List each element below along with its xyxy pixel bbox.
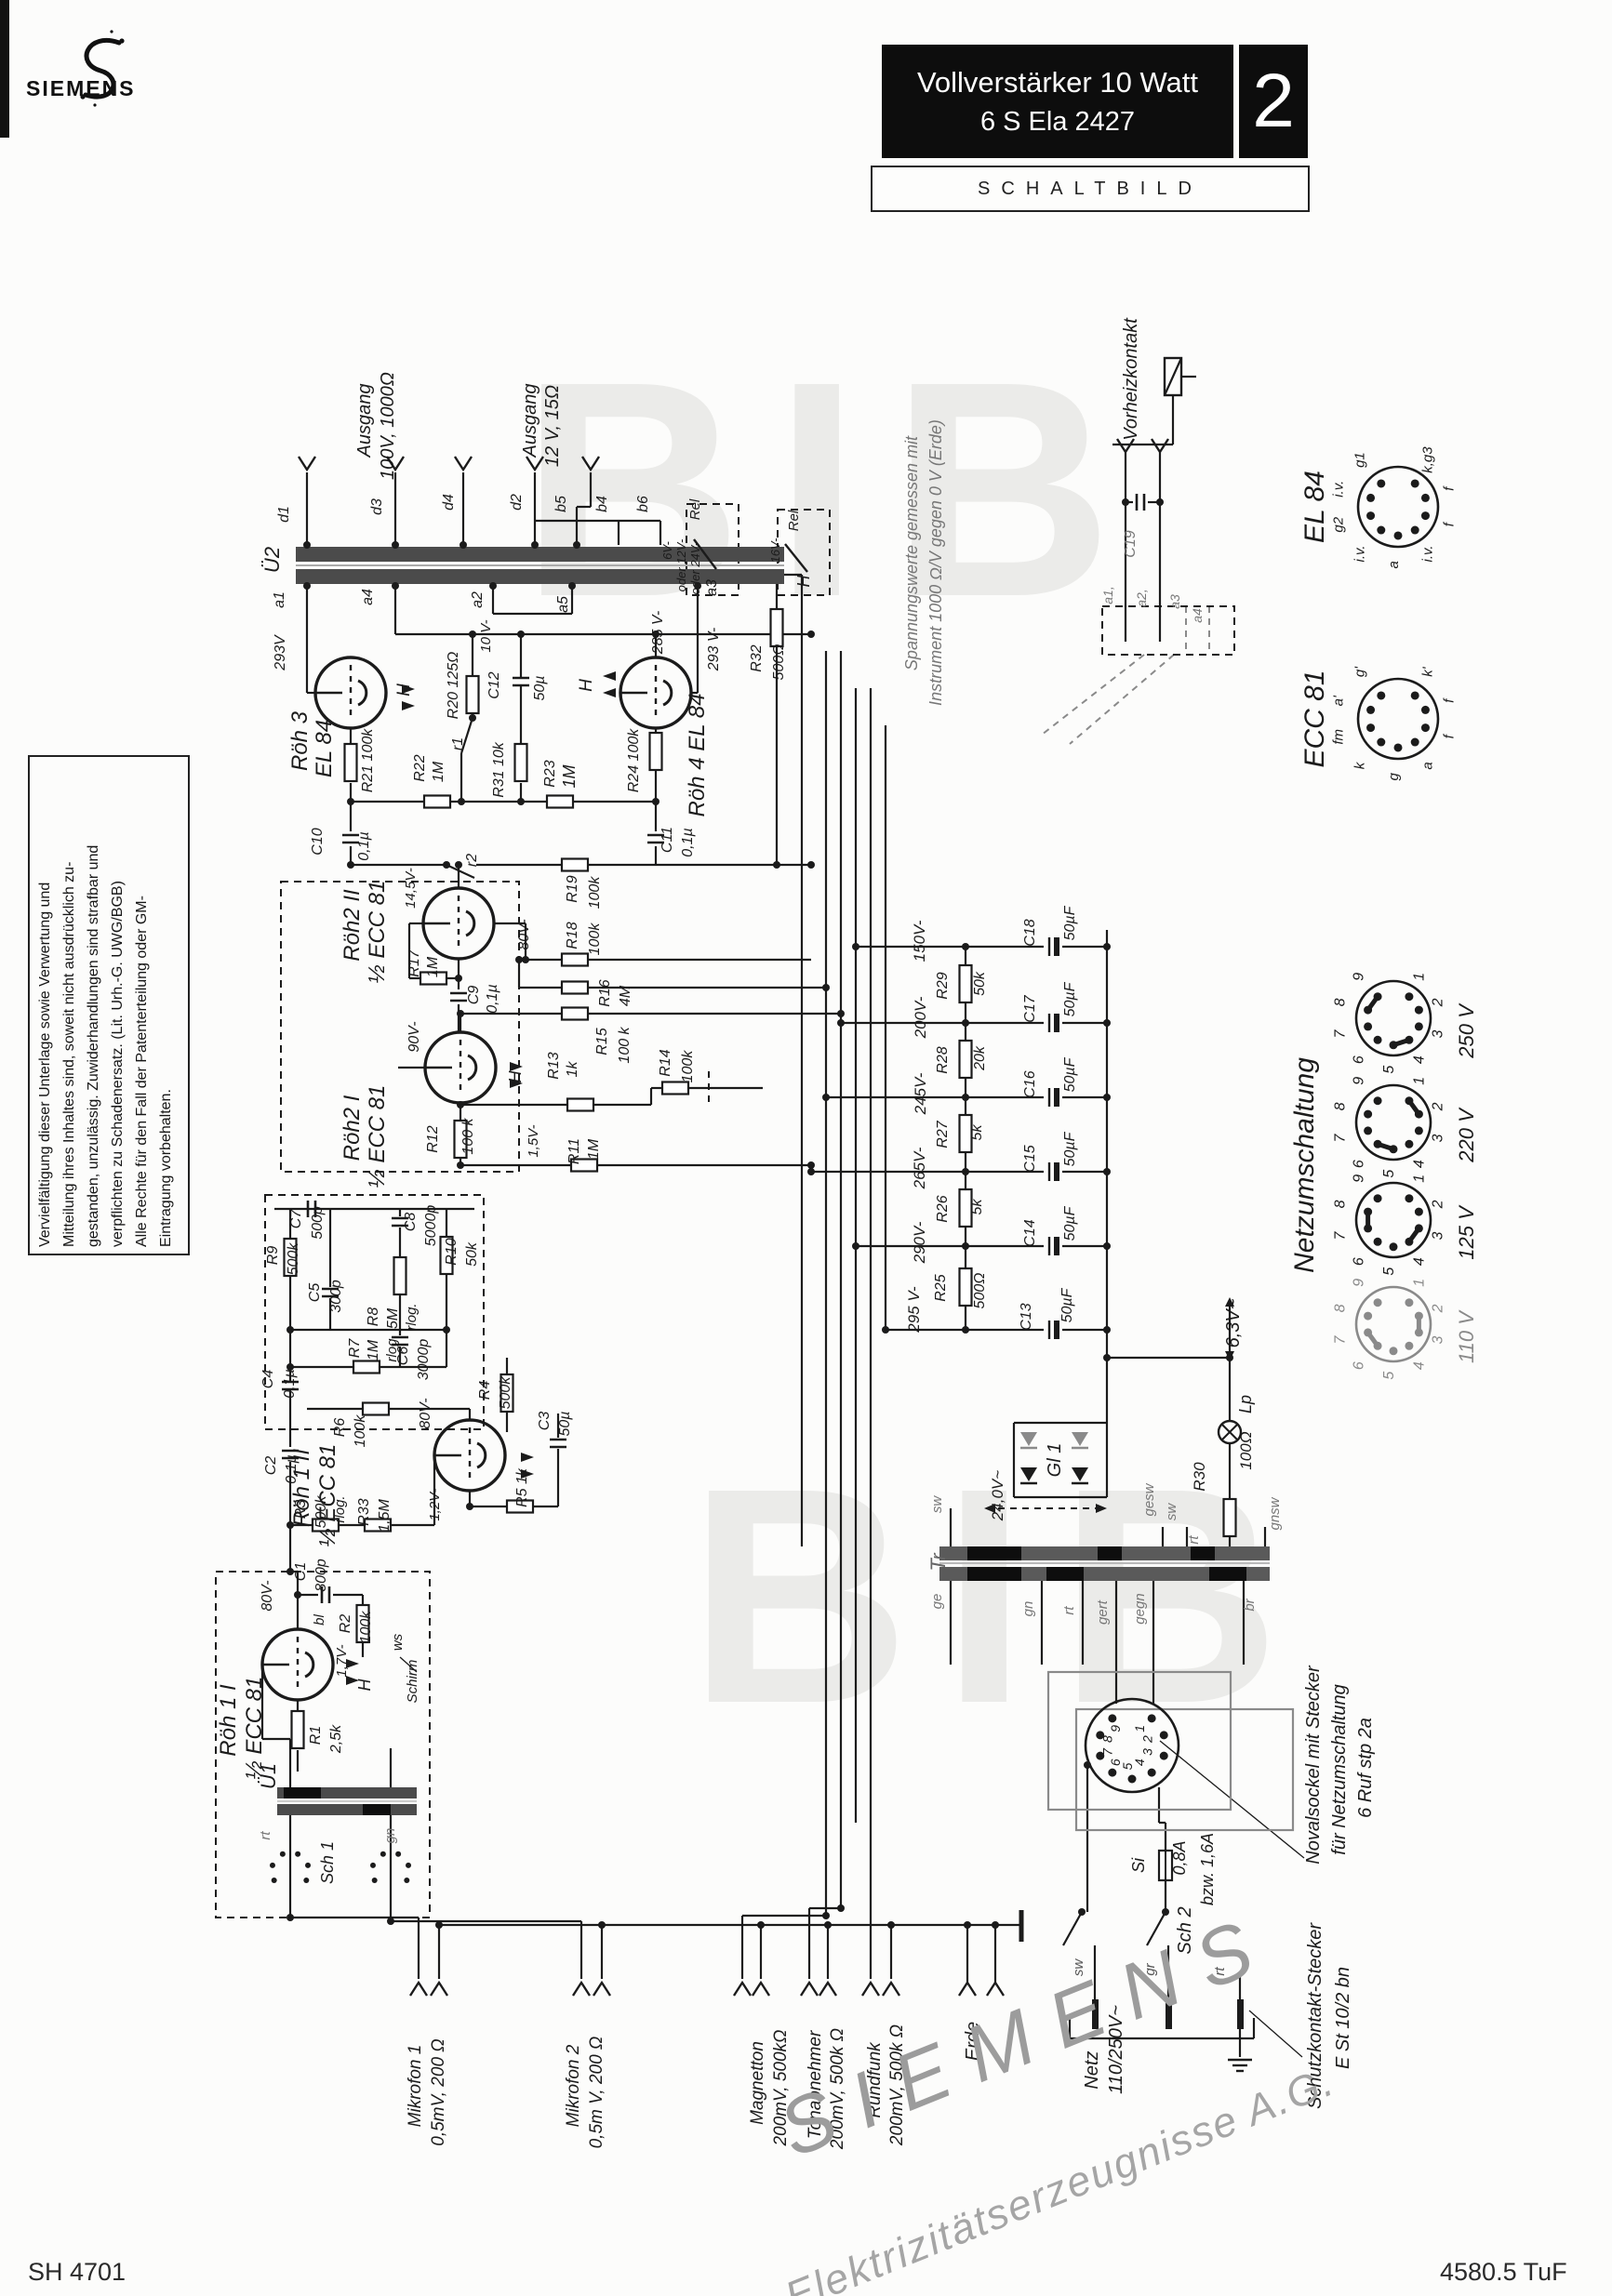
- schematic-label: 265V-: [911, 1147, 928, 1189]
- schematic-label: 80V-: [516, 919, 532, 949]
- schematic-label: 500Ω: [972, 1273, 988, 1309]
- schematic-label: Ü1: [257, 1763, 280, 1789]
- schematic-label: Röh 3: [287, 710, 313, 771]
- resistor-symbol: [467, 676, 479, 713]
- schematic-label: R7: [347, 1338, 363, 1359]
- socket-pin-label: fm: [1331, 729, 1347, 745]
- terminal-fork: [410, 1983, 427, 1996]
- schematic-label: d3: [369, 498, 385, 515]
- resistor-symbol: [662, 1082, 688, 1095]
- socket-pin-label: a: [1386, 561, 1402, 568]
- terminal-fork: [753, 1983, 769, 1996]
- schematic-label: 50µ: [557, 1411, 573, 1436]
- schematic-label: 2,5k: [328, 1724, 344, 1754]
- schematic-label: 16V-: [768, 538, 782, 564]
- schematic-label: Lp: [1236, 1395, 1255, 1413]
- mains-voltage-socket: 123456789250 V: [1333, 973, 1478, 1074]
- socket-pin-label: 1: [1411, 1077, 1427, 1085]
- schematic-label: 500p: [310, 1206, 326, 1240]
- terminal-fork: [819, 1983, 836, 1996]
- schematic-label: 6,3V~: [1223, 1298, 1244, 1347]
- schematic-label: 80V-: [418, 1398, 433, 1428]
- schematic-label: Si: [1129, 1857, 1148, 1873]
- schematic-label: 100V, 1000Ω: [378, 372, 398, 480]
- schematic-label: gesw: [1141, 1482, 1157, 1516]
- schematic-label: H: [794, 575, 813, 588]
- resistor-symbol: [650, 733, 662, 770]
- schematic-label: R19: [565, 875, 580, 902]
- schematic-label: 100k: [353, 1414, 368, 1448]
- socket-pin-label: 6: [1352, 1361, 1367, 1370]
- schematic-label: R29: [935, 972, 951, 999]
- schematic-label: ½ ECC 81: [365, 881, 390, 984]
- terminal-fork: [862, 1983, 879, 1996]
- schematic-label: 20k: [972, 1045, 988, 1071]
- resistor-symbol: [567, 1099, 593, 1111]
- schematic-label: C16: [1022, 1070, 1038, 1097]
- socket-pin-label: 3: [1430, 1232, 1445, 1241]
- schematic-label: 1M: [560, 764, 579, 788]
- schematic-label: R6: [332, 1418, 348, 1438]
- resistor-symbol: [771, 609, 783, 646]
- socket-voltage-label: 110 V: [1455, 1309, 1478, 1363]
- schematic-label: R10: [444, 1238, 460, 1265]
- schematic-label: R20 125Ω: [446, 652, 461, 720]
- schematic-label: Magnetton: [748, 2041, 767, 2125]
- socket-pin-label: f: [1441, 697, 1457, 703]
- schematic-label: E St 10/2 bn: [1333, 1967, 1353, 2069]
- schematic-label: R16: [597, 979, 613, 1006]
- schematic-label: rt: [1061, 1606, 1077, 1615]
- schematic-label: 1M: [586, 1138, 602, 1160]
- schematic-label: R17: [406, 949, 422, 976]
- schematic-label: 1M: [366, 1339, 381, 1360]
- schematic-label: 500k: [313, 1495, 329, 1529]
- schematic-label: gegn: [1132, 1593, 1148, 1624]
- schematic-label: Novalsockel mit Stecker: [1303, 1665, 1324, 1865]
- socket-pin-label: 9: [1108, 1725, 1123, 1732]
- schematic-label: gn: [1020, 1601, 1036, 1617]
- terminal-fork: [987, 1983, 1004, 1996]
- mains-plug-pin: [1237, 1999, 1244, 2029]
- socket-pin-label: 9: [1352, 973, 1367, 981]
- resistor-symbol: [562, 859, 588, 871]
- socket-pin-label: 4: [1411, 1361, 1427, 1370]
- socket-pin-label: 8: [1333, 1102, 1349, 1110]
- heater-arrow-icon: [603, 688, 616, 697]
- schematic-label: 1k: [565, 1061, 580, 1078]
- terminal-fork: [455, 457, 472, 470]
- socket-pin-label: k,g3: [1420, 446, 1436, 473]
- terminal-fork: [883, 1983, 899, 1996]
- socket-pin-label: f: [1441, 733, 1457, 738]
- schematic-label: 100 k: [460, 1117, 476, 1154]
- socket-voltage-label: 125 V: [1455, 1204, 1478, 1260]
- socket-pin-label: 2: [1430, 998, 1445, 1007]
- socket-pin-label: g2: [1331, 516, 1347, 532]
- schematic-label: 50µF: [1062, 905, 1078, 940]
- schematic-label: C1: [293, 1562, 309, 1581]
- schematic-label: H: [506, 1070, 525, 1083]
- schematic-label: 0,8A: [1170, 1840, 1189, 1875]
- schematic-label: 500k: [498, 1376, 513, 1410]
- schematic-label: Schirm: [405, 1660, 420, 1704]
- schematic-label: R4: [477, 1381, 493, 1400]
- resistor-symbol: [960, 1268, 972, 1306]
- socket-pin-label: i.v.: [1352, 545, 1367, 562]
- schematic-label: gn: [382, 1828, 398, 1844]
- resistor-symbol: [1224, 1499, 1236, 1536]
- socket-pin-label: 1: [1411, 1279, 1427, 1287]
- mains-voltage-socket: 123456789125 V: [1333, 1175, 1478, 1276]
- schematic-label: R12: [425, 1125, 441, 1152]
- mains-voltage-socket: 123456789220 V: [1333, 1077, 1478, 1178]
- schematic-label: Mikrofon 1: [406, 2045, 425, 2128]
- schematic-label: Röh2 I: [340, 1095, 365, 1161]
- schematic-label: 293V: [273, 634, 288, 671]
- schematic-label: rlog.: [384, 1334, 400, 1361]
- socket-pin-label: 2: [1430, 1200, 1445, 1209]
- schematic-label: 100k: [358, 1611, 374, 1644]
- resistor-symbol: [562, 982, 588, 994]
- schematic-label: 0,1µ: [485, 984, 500, 1013]
- schematic-label: ws: [390, 1633, 406, 1651]
- schematic-label: R22: [412, 754, 428, 781]
- socket-pin-label: f: [1441, 485, 1457, 491]
- socket-pin-label: 8: [1333, 1200, 1349, 1208]
- schematic-label: a4: [360, 589, 376, 605]
- schematic-label: R11: [566, 1138, 582, 1164]
- schematic-label: 293 V-: [706, 628, 722, 672]
- schematic-label: C7: [288, 1209, 304, 1229]
- socket-pin-label: 7: [1100, 1747, 1115, 1756]
- schematic-label: R24 100k: [626, 728, 642, 792]
- schematic-label: 285 V-: [650, 611, 666, 656]
- schematic-label: 0,5m V, 200 Ω: [587, 2037, 606, 2149]
- schematic-label: b5: [553, 496, 569, 512]
- socket-pin-label: 1: [1411, 1175, 1427, 1183]
- schematic-label: oder 12V-: [674, 538, 688, 591]
- schematic-label: 50µF: [1062, 1205, 1078, 1241]
- terminal-fork: [734, 1983, 751, 1996]
- socket-pin-label: 5: [1381, 1267, 1397, 1276]
- schematic-label: 300p: [328, 1280, 344, 1313]
- schematic-label: R30: [1191, 1462, 1208, 1492]
- schematic-label: a5: [555, 596, 571, 613]
- schematic-label: 800p: [313, 1559, 329, 1592]
- socket-pin-label: 9: [1352, 1279, 1367, 1287]
- socket-pin-label: 1: [1132, 1725, 1147, 1732]
- scanned-schematic-page: { "header": { "brand": "SIEMENS", "title…: [0, 0, 1612, 2296]
- schematic-label: C17: [1022, 994, 1038, 1022]
- schematic-label: 100k: [680, 1050, 696, 1083]
- schematic-label: R1: [308, 1726, 324, 1745]
- schematic-label: 100Ω: [1237, 1431, 1255, 1469]
- resistor-symbol: [562, 1008, 588, 1020]
- schematic-label: für Netzumschaltung: [1329, 1684, 1350, 1854]
- schematic-label: 1,7V-: [334, 1644, 350, 1677]
- schematic-label: bl: [312, 1614, 327, 1626]
- schematic-label: R14: [658, 1049, 673, 1076]
- schematic-label: Ausgang: [520, 384, 540, 458]
- schematic-label: oder 24V-: [688, 541, 702, 594]
- socket-voltage-label: 220 V: [1455, 1107, 1478, 1163]
- schematic-label: EL 84: [312, 720, 337, 777]
- schematic-label: r1: [450, 737, 466, 750]
- schematic-label: d4: [441, 494, 457, 511]
- schematic-label: R28: [935, 1046, 951, 1073]
- schematic-label: C18: [1022, 919, 1038, 946]
- schematic-label: Röh2 II: [340, 889, 365, 962]
- schematic-label: Röh 4 EL 84: [685, 694, 710, 817]
- schematic-label: R3: [293, 1500, 309, 1520]
- schematic-label: 295 V-: [905, 1286, 923, 1334]
- schematic-label: a1,: [1100, 586, 1115, 604]
- resistor-symbol: [353, 1361, 380, 1374]
- heater-arrow-icon: [402, 701, 415, 710]
- schematic-label: r2: [464, 854, 480, 867]
- socket-pin-label: 6: [1352, 1055, 1367, 1064]
- schematic-label: 6V-: [660, 540, 674, 559]
- schematic-label: 4M: [618, 985, 633, 1006]
- schematic-label: R27: [935, 1120, 951, 1148]
- schematic-label: a2,: [1134, 589, 1149, 606]
- socket-pin-label: 8: [1333, 998, 1349, 1006]
- schematic-label: 10 V-: [478, 619, 494, 652]
- socket-pin-label: a': [1331, 695, 1347, 706]
- socket-pin-label: 5: [1381, 1170, 1397, 1178]
- socket-pin-label: 8: [1333, 1304, 1349, 1312]
- schematic-label: H: [394, 683, 414, 697]
- schematic-label: gnsw: [1267, 1496, 1283, 1530]
- schematic-label: C15: [1022, 1145, 1038, 1172]
- schematic-label: C4: [260, 1370, 276, 1389]
- schematic-label: 6 Ruf stp 2a: [1355, 1718, 1376, 1818]
- socket-pin-label: 7: [1333, 1335, 1349, 1345]
- schematic-label: 0,1µ: [680, 828, 696, 856]
- schematic-label: 0,1µ: [284, 1454, 300, 1483]
- schematic-label: 100k: [587, 876, 603, 909]
- schematic-label: 50µF: [1059, 1287, 1075, 1322]
- mains-voltage-socket: 123456789110 V: [1333, 1279, 1478, 1380]
- resistor-symbol: [394, 1257, 406, 1294]
- schematic-label: 150V-: [911, 920, 928, 962]
- schematic-label: 5M: [385, 1307, 401, 1329]
- schematic-label: gert: [1095, 1599, 1111, 1625]
- schematic-label: 1,2V-: [427, 1488, 443, 1520]
- schematic-label: C8: [403, 1213, 419, 1232]
- socket-pin-label: 1: [1411, 973, 1427, 981]
- resistor-symbol: [515, 744, 527, 781]
- resistor-symbol: [562, 954, 588, 966]
- schematic-label: Instrument 1000 Ω/V gegen 0 V (Erde): [926, 419, 945, 706]
- schematic-label: 50µF: [1062, 1056, 1078, 1092]
- schematic-label: Mikrofon 2: [564, 2044, 583, 2127]
- schematic-label: a3: [1167, 594, 1182, 609]
- schematic-label: C11: [659, 827, 675, 853]
- socket-pin-label: 7: [1333, 1134, 1349, 1143]
- socket-pin-label: k: [1352, 761, 1367, 769]
- schematic-label: 0,1µ: [356, 831, 372, 860]
- schematic-label: 50µF: [1062, 1131, 1078, 1166]
- socket-pin-label: 4: [1411, 1257, 1427, 1266]
- schematic-label: R15: [594, 1028, 610, 1055]
- socket-pin-label: k': [1420, 666, 1436, 677]
- schematic-label: b4: [594, 496, 610, 512]
- terminal-fork: [801, 1983, 818, 1996]
- socket-pin-label: a: [1420, 762, 1436, 769]
- schematic-label: 14,5V-: [403, 868, 419, 909]
- schematic-label: rlog.: [332, 1495, 348, 1522]
- schematic-label: C13: [1019, 1303, 1034, 1330]
- schematic-label: 50k: [464, 1241, 480, 1267]
- schematic-label: d1: [276, 506, 292, 523]
- socket-pin-label: g1: [1352, 452, 1367, 468]
- schematic-label: a1: [272, 591, 287, 608]
- socket-pin-label: 6: [1108, 1758, 1123, 1766]
- schematic-label: sw: [1164, 1503, 1179, 1521]
- socket-pin-label: i.v.: [1420, 545, 1436, 562]
- socket-pin-label: 3: [1139, 1748, 1154, 1756]
- schematic-label: 50µF: [1062, 981, 1078, 1016]
- resistor-symbol: [292, 1711, 304, 1748]
- resistor-symbol: [424, 796, 450, 808]
- schematic-label: 1M: [431, 761, 446, 782]
- schematic-label: 1,5V-: [526, 1124, 541, 1157]
- resistor-symbol: [547, 796, 573, 808]
- schematic-label: 5k: [969, 1124, 985, 1141]
- schematic-label: 50µ: [532, 675, 548, 700]
- terminal-fork: [573, 1983, 590, 1996]
- schematic-label: 24,0V~: [989, 1470, 1006, 1521]
- resistor-symbol: [960, 965, 972, 1002]
- schematic-label: C5: [307, 1283, 323, 1303]
- socket-pin-label: 5: [1381, 1066, 1397, 1074]
- schematic-label: 200V-: [912, 996, 929, 1039]
- socket-pin-label: g: [1386, 773, 1402, 781]
- socket-pin-label: 6: [1352, 1160, 1367, 1168]
- terminal-fork: [593, 1983, 610, 1996]
- schematic-label: C14: [1022, 1219, 1038, 1246]
- heater-arrow-icon: [510, 1062, 523, 1071]
- schematic-label: Sch 1: [318, 1841, 337, 1884]
- schematic-label: R9: [265, 1246, 281, 1266]
- resistor-symbol: [345, 744, 357, 781]
- schematic-label: R21 100k: [360, 728, 376, 792]
- schematic-label: C10: [310, 828, 326, 855]
- socket-pin-label: 4: [1411, 1055, 1427, 1064]
- archive-watermark-text: BIB: [521, 317, 1144, 660]
- schematic-label: R32: [749, 644, 765, 671]
- schematic-label: R5 1k: [514, 1467, 530, 1507]
- socket-pin-label: g': [1352, 666, 1367, 677]
- schematic-label: C3: [537, 1412, 553, 1431]
- schematic-label: ½ ECC 81: [315, 1444, 340, 1547]
- schematic-label: C9: [466, 986, 482, 1005]
- socket-pin-label: 9: [1352, 1175, 1367, 1183]
- socket-pin-label: i.v.: [1331, 481, 1347, 498]
- schematic-label: ½ ECC 81: [365, 1085, 390, 1188]
- schematic-label: H: [355, 1679, 374, 1692]
- schematic-label: C19: [1123, 530, 1139, 557]
- schematic-label: 80V-: [260, 1580, 275, 1611]
- heater-arrow-icon: [521, 1453, 534, 1462]
- schematic-label: R31 10k: [491, 741, 507, 798]
- socket-pin-label: 6: [1352, 1257, 1367, 1266]
- schematic-label: 0,1µ: [282, 1369, 298, 1398]
- terminal-fork: [431, 1983, 447, 1996]
- schematic-label: R23: [542, 760, 558, 787]
- schematic-label: 100 k: [617, 1026, 633, 1063]
- schematic-label: Tr: [926, 1552, 950, 1572]
- schematic-label: 500Ω: [771, 644, 787, 681]
- schematic-label: Netzumschaltung: [1289, 1057, 1320, 1273]
- schematic-label: R26: [935, 1195, 951, 1222]
- schematic-label: a4: [1190, 608, 1205, 623]
- schematic-label: Ü2: [260, 547, 284, 573]
- terminal-fork: [299, 457, 315, 470]
- schematic-label: Rel: [687, 498, 703, 520]
- socket-name-label: EL 84: [1299, 471, 1330, 543]
- resistor-symbol: [960, 1041, 972, 1078]
- schematic-label: d2: [509, 494, 525, 511]
- schematic-label: br: [1242, 1598, 1258, 1611]
- schematic-label: H: [577, 679, 596, 692]
- schematic-label: 290V-: [911, 1221, 928, 1264]
- schematic-label: rt: [258, 1831, 273, 1840]
- schematic-label: 50k: [972, 971, 988, 996]
- schematic-label: Rel: [786, 510, 802, 531]
- schematic-label: a2: [470, 591, 486, 608]
- schematic-label: 1,5M: [377, 1499, 393, 1533]
- socket-pin-label: 3: [1430, 1336, 1445, 1345]
- socket-pin-label: 2: [1139, 1735, 1154, 1744]
- schematic-label: 3000p: [416, 1339, 432, 1381]
- schematic-label: rt: [1186, 1535, 1202, 1545]
- tube-socket-el84: k,g3ffi.v.ai.v.g2i.v.g1EL 84: [1299, 446, 1457, 569]
- schematic-label: R33: [356, 1498, 372, 1525]
- socket-pin-label: 2: [1430, 1102, 1445, 1111]
- socket-pin-label: 3: [1430, 1030, 1445, 1039]
- socket-pin-label: 9: [1352, 1077, 1367, 1085]
- terminal-fork: [959, 1983, 976, 1996]
- schematic-label: R18: [565, 922, 580, 949]
- schematic-canvas: BIBBIBk,g3ffi.v.ai.v.g2i.v.g1EL 84k'ffag…: [0, 0, 1612, 2296]
- schematic-label: 90V-: [406, 1021, 422, 1052]
- socket-pin-label: 4: [1411, 1160, 1427, 1168]
- schematic-label: R13: [546, 1052, 562, 1079]
- schematic-label: 245V-: [912, 1072, 929, 1115]
- schematic-label: Spannungswerte gemessen mit: [902, 435, 921, 670]
- schematic-label: Vorheizkontakt: [1121, 317, 1141, 441]
- schematic-label: Gl 1: [1045, 1443, 1065, 1478]
- schematic-label: Ausgang: [354, 384, 375, 458]
- schematic-label: bzw. 1,6A: [1198, 1833, 1217, 1905]
- socket-pin-label: 2: [1430, 1304, 1445, 1313]
- schematic-label: rlog.: [404, 1303, 420, 1330]
- schematic-label: R8: [366, 1307, 381, 1327]
- resistor-symbol: [363, 1403, 389, 1415]
- schematic-label: R25: [933, 1274, 949, 1301]
- schematic-label: a3: [704, 579, 720, 596]
- socket-pin-label: 7: [1333, 1231, 1349, 1241]
- socket-pin-label: 7: [1333, 1029, 1349, 1039]
- socket-pin-label: 8: [1100, 1735, 1115, 1743]
- schematic-label: 5k: [969, 1199, 985, 1215]
- schematic-label: 500k: [286, 1242, 301, 1276]
- schematic-label: Röh 1 I: [216, 1684, 241, 1757]
- socket-pin-label: 3: [1430, 1135, 1445, 1143]
